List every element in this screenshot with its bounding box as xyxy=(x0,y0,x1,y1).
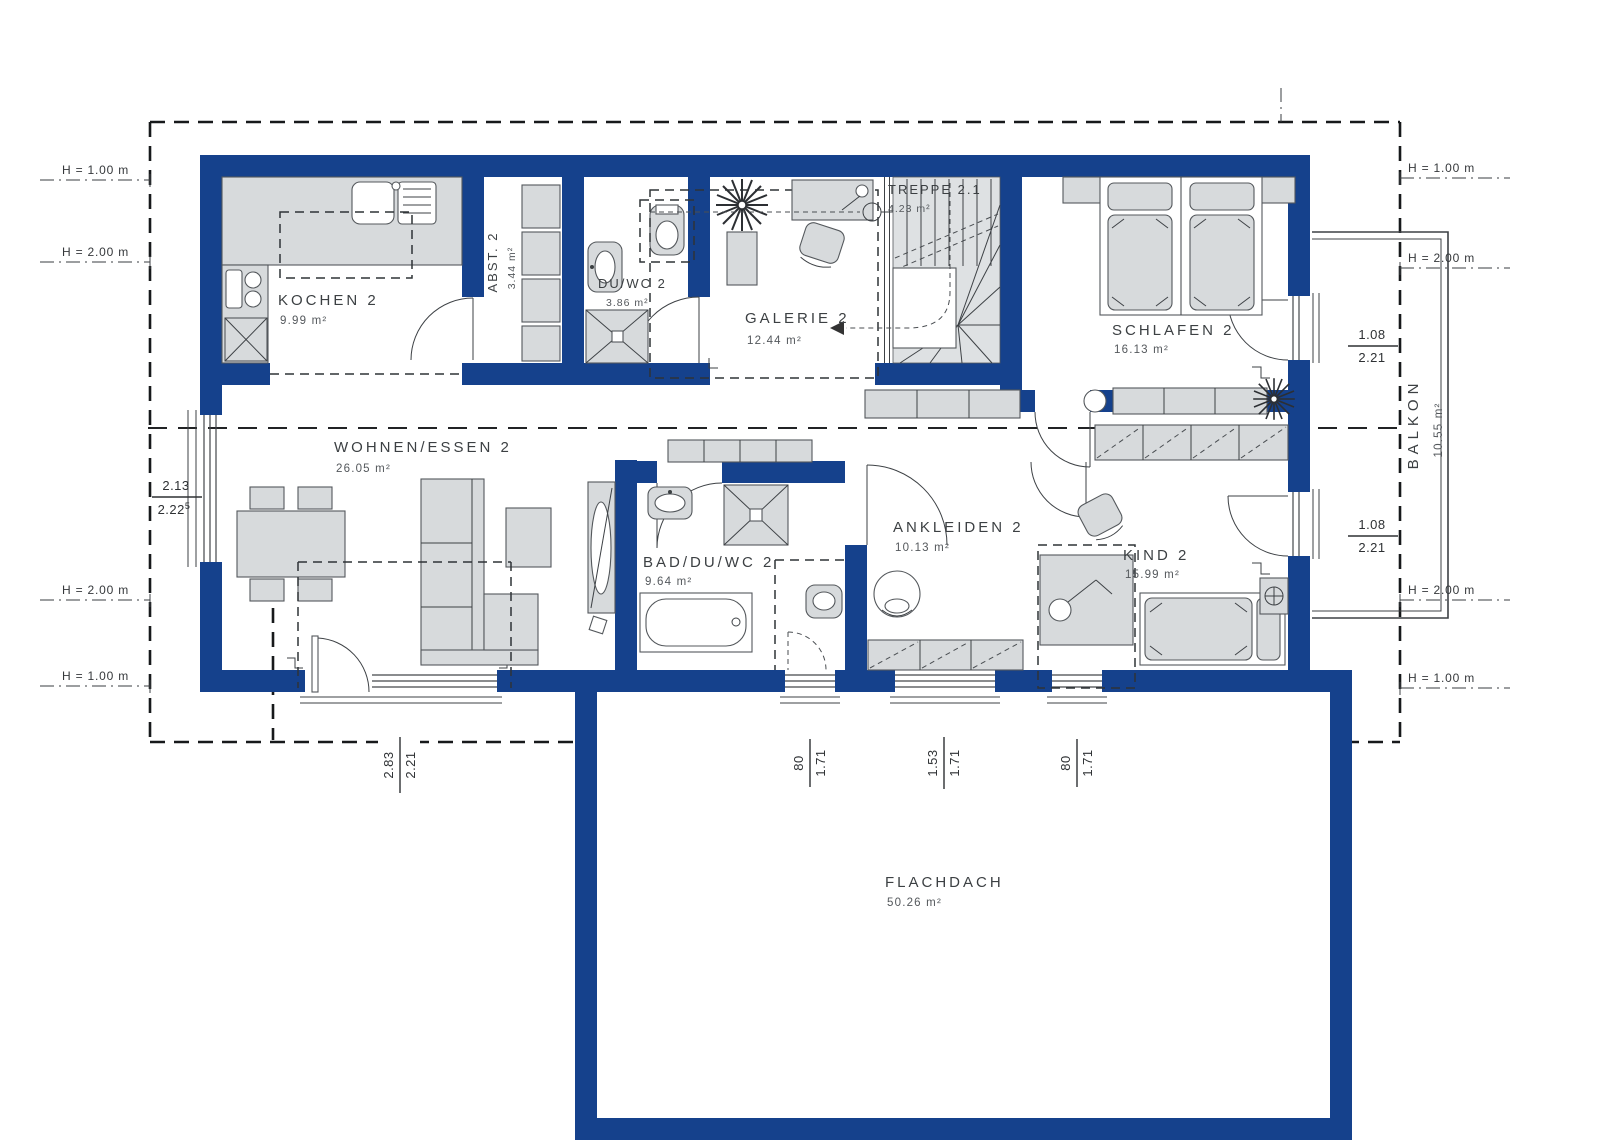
height-marker-right-3: H = 2.00 m xyxy=(1400,583,1510,607)
svg-text:ABST. 2: ABST. 2 xyxy=(485,232,500,293)
svg-text:H = 2.00 m: H = 2.00 m xyxy=(62,245,129,259)
svg-text:KOCHEN 2: KOCHEN 2 xyxy=(278,292,379,309)
svg-text:80: 80 xyxy=(791,755,806,770)
desk-lamp xyxy=(1049,599,1071,621)
terrace-window xyxy=(300,675,502,703)
svg-text:BAD/DU/WC 2: BAD/DU/WC 2 xyxy=(643,554,774,571)
mattress xyxy=(1145,598,1252,660)
sofa xyxy=(421,479,484,663)
svg-text:26.05 m²: 26.05 m² xyxy=(336,463,391,475)
svg-text:1.08: 1.08 xyxy=(1358,517,1385,532)
svg-text:1.71: 1.71 xyxy=(947,749,962,776)
svg-text:1.71: 1.71 xyxy=(1080,749,1095,776)
svg-text:DU/WC 2: DU/WC 2 xyxy=(598,276,667,291)
galerie-zone xyxy=(650,179,897,378)
kitchen-oven xyxy=(226,270,242,308)
svg-text:2.21: 2.21 xyxy=(1358,540,1385,555)
room-label-kochen: KOCHEN 2 9.99 m² xyxy=(278,292,379,327)
kitchen-furniture xyxy=(222,177,462,374)
svg-text:SCHLAFEN 2: SCHLAFEN 2 xyxy=(1112,322,1235,339)
svg-text:4.23 m²: 4.23 m² xyxy=(888,203,931,215)
svg-text:15.99 m²: 15.99 m² xyxy=(1125,569,1180,581)
side-table xyxy=(506,508,551,567)
svg-text:BALKON: BALKON xyxy=(1405,379,1422,470)
kitchen-faucet xyxy=(392,182,400,190)
pillow xyxy=(1108,183,1172,210)
abst-shelves xyxy=(522,185,560,361)
room-label-schlafen: SCHLAFEN 2 16.13 m² xyxy=(1112,322,1235,356)
svg-text:80: 80 xyxy=(1058,755,1073,770)
plant-icon xyxy=(716,179,768,231)
kitchen-burner xyxy=(245,272,261,288)
svg-text:1.08: 1.08 xyxy=(1358,327,1385,342)
floorplan-drawing: KOCHEN 2 9.99 m² ABST. 2 3.44 m² DU/WC 2… xyxy=(0,0,1600,1146)
height-marker-left-3: H = 2.00 m xyxy=(40,583,150,607)
dimension-kind-balcony-door: 1.08 2.21 xyxy=(1348,517,1398,555)
stair-landing xyxy=(893,268,956,348)
ankleiden-furniture xyxy=(868,571,1023,670)
desk-chair xyxy=(1075,491,1128,545)
svg-text:H = 1.00 m: H = 1.00 m xyxy=(62,163,129,177)
height-marker-right-4: H = 1.00 m xyxy=(1400,671,1510,695)
svg-text:3.86 m²: 3.86 m² xyxy=(606,297,649,309)
height-marker-right-1: H = 1.00 m xyxy=(1400,161,1510,185)
chair xyxy=(298,579,332,601)
hall-sideboard xyxy=(865,390,1020,418)
terrace-door xyxy=(312,636,369,692)
svg-text:10.13 m²: 10.13 m² xyxy=(895,542,950,554)
svg-text:ANKLEIDEN 2: ANKLEIDEN 2 xyxy=(893,519,1024,536)
floorplan-page: KOCHEN 2 9.99 m² ABST. 2 3.44 m² DU/WC 2… xyxy=(0,0,1600,1146)
svg-text:2.21: 2.21 xyxy=(403,751,418,778)
svg-text:WOHNEN/ESSEN 2: WOHNEN/ESSEN 2 xyxy=(334,439,512,456)
hall-furniture xyxy=(668,390,1020,462)
optional-door-dashed xyxy=(788,632,826,670)
svg-text:H = 2.00 m: H = 2.00 m xyxy=(62,583,129,597)
svg-text:H = 1.00 m: H = 1.00 m xyxy=(1408,161,1475,175)
svg-text:TREPPE 2.1: TREPPE 2.1 xyxy=(888,182,982,197)
height-marker-right-2: H = 2.00 m xyxy=(1400,251,1510,275)
svg-text:16.13 m²: 16.13 m² xyxy=(1114,344,1169,356)
svg-text:FLACHDACH: FLACHDACH xyxy=(885,874,1004,891)
stool xyxy=(1084,390,1106,412)
balcony xyxy=(1312,232,1448,618)
svg-text:GALERIE 2: GALERIE 2 xyxy=(745,310,850,327)
dimension-schlafen-balcony-door: 1.08 2.21 xyxy=(1348,327,1398,365)
svg-text:2.21: 2.21 xyxy=(1358,350,1385,365)
svg-text:H = 2.00 m: H = 2.00 m xyxy=(1408,251,1475,265)
plant-icon xyxy=(1253,378,1295,420)
dimension-bad-window: 80 1.71 xyxy=(788,733,830,793)
svg-text:1.71: 1.71 xyxy=(813,749,828,776)
room-label-wohnen: WOHNEN/ESSEN 2 26.05 m² xyxy=(334,439,512,475)
height-marker-left-2: H = 2.00 m xyxy=(40,245,150,269)
svg-text:2.225: 2.225 xyxy=(158,501,191,517)
mattress xyxy=(1108,215,1172,310)
chair xyxy=(298,487,332,509)
galerie-sideboard xyxy=(727,232,757,285)
kitchen-burner xyxy=(245,291,261,307)
svg-text:9.99 m²: 9.99 m² xyxy=(280,315,327,327)
schlafen-furniture xyxy=(1063,177,1295,420)
kochen-abst-door xyxy=(411,298,473,360)
schlafen-door xyxy=(1035,412,1090,467)
svg-text:H = 1.00 m: H = 1.00 m xyxy=(1408,671,1475,685)
chair xyxy=(250,579,284,601)
svg-text:2.13: 2.13 xyxy=(162,478,189,493)
mattress xyxy=(1190,215,1254,310)
desk-chair xyxy=(796,221,847,272)
kitchen-sink-basin xyxy=(352,182,394,224)
svg-text:KIND 2: KIND 2 xyxy=(1123,547,1189,564)
dimension-left-window: 2.13 2.225 xyxy=(152,478,202,517)
svg-text:H = 2.00 m: H = 2.00 m xyxy=(1408,583,1475,597)
room-label-bad: BAD/DU/WC 2 9.64 m² xyxy=(643,554,774,588)
wohnen-furniture xyxy=(237,479,615,688)
dimension-ankleiden-window: 1.53 1.71 xyxy=(922,733,964,793)
room-label-balkon: BALKON 10.55 m² xyxy=(1405,379,1445,470)
dimension-terrace: 2.83 2.21 xyxy=(378,731,420,799)
svg-text:50.26 m²: 50.26 m² xyxy=(887,897,942,909)
svg-text:2.83: 2.83 xyxy=(381,751,396,778)
kind-door xyxy=(1031,462,1086,517)
chair xyxy=(250,487,284,509)
wardrobe-row xyxy=(868,640,1023,670)
svg-text:9.64 m²: 9.64 m² xyxy=(645,576,692,588)
height-marker-left-4: H = 1.00 m xyxy=(40,669,150,693)
kind-balcony-door xyxy=(1228,489,1319,559)
left-window xyxy=(188,410,216,567)
svg-text:10.55 m²: 10.55 m² xyxy=(1433,403,1445,458)
room-label-abst: ABST. 2 3.44 m² xyxy=(485,232,518,293)
dimension-kind-window: 80 1.71 xyxy=(1055,733,1097,793)
height-marker-left-1: H = 1.00 m xyxy=(40,163,150,187)
schlafen-sideboard xyxy=(1113,388,1267,414)
sofa-armrest xyxy=(421,650,538,665)
desk xyxy=(1040,555,1133,645)
pillow xyxy=(1190,183,1254,210)
svg-text:3.44 m²: 3.44 m² xyxy=(506,247,518,290)
svg-text:H = 1.00 m: H = 1.00 m xyxy=(62,669,129,683)
dining-table xyxy=(237,511,345,577)
svg-text:1.53: 1.53 xyxy=(925,749,940,776)
kitchen-sink-drainer xyxy=(398,182,436,224)
room-label-ankleiden: ANKLEIDEN 2 10.13 m² xyxy=(893,519,1024,554)
svg-text:12.44 m²: 12.44 m² xyxy=(747,335,802,347)
